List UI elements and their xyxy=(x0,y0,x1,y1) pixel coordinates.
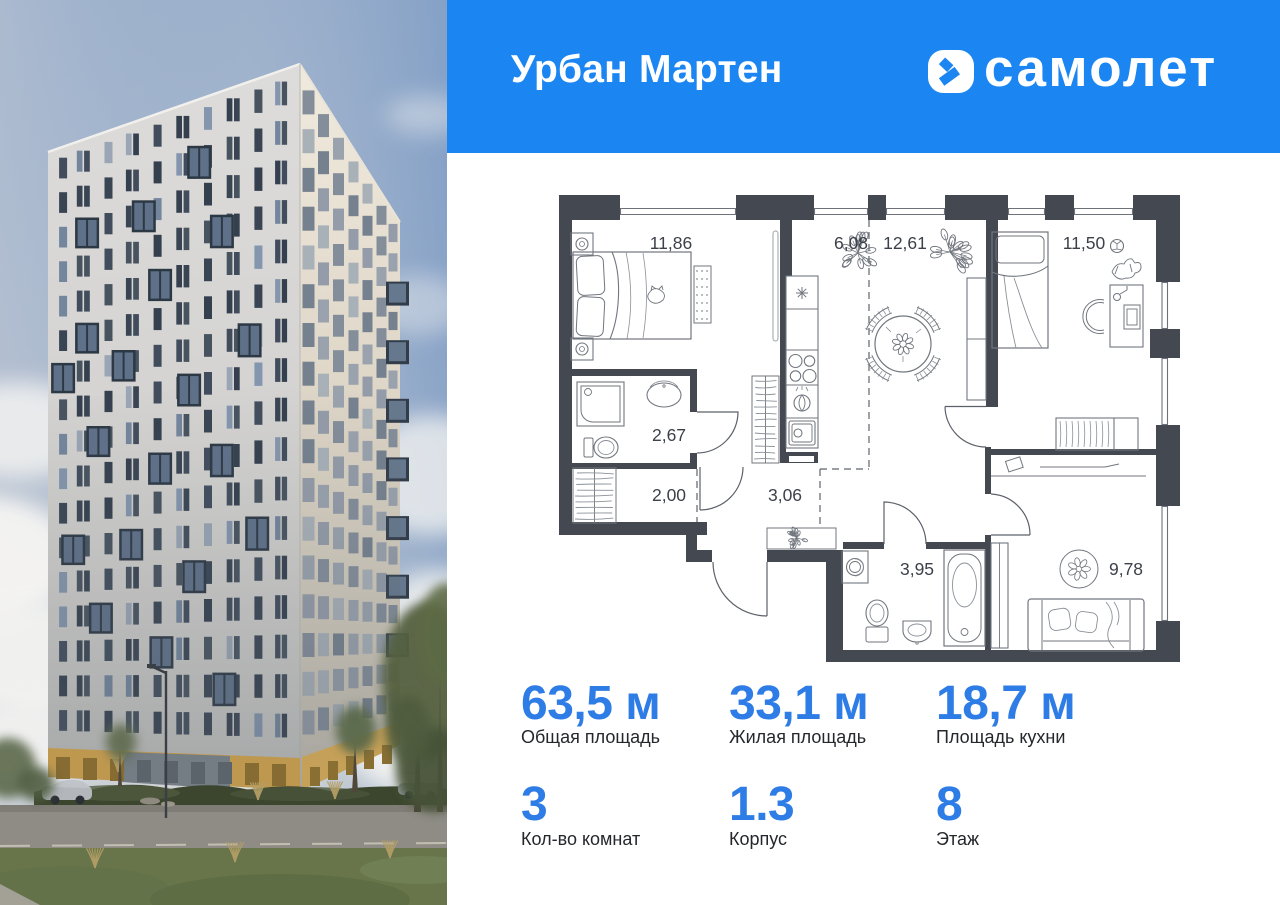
svg-text:2,00: 2,00 xyxy=(652,485,686,505)
svg-text:самолет: самолет xyxy=(984,50,1218,94)
svg-text:3,06: 3,06 xyxy=(768,485,802,505)
svg-text:2,67: 2,67 xyxy=(652,425,686,445)
svg-text:11,50: 11,50 xyxy=(1063,233,1106,253)
svg-text:12,61: 12,61 xyxy=(883,233,927,253)
svg-text:3,95: 3,95 xyxy=(900,559,934,579)
svg-text:11,86: 11,86 xyxy=(650,233,693,253)
svg-text:6,08: 6,08 xyxy=(834,233,868,253)
svg-text:9,78: 9,78 xyxy=(1109,559,1143,579)
